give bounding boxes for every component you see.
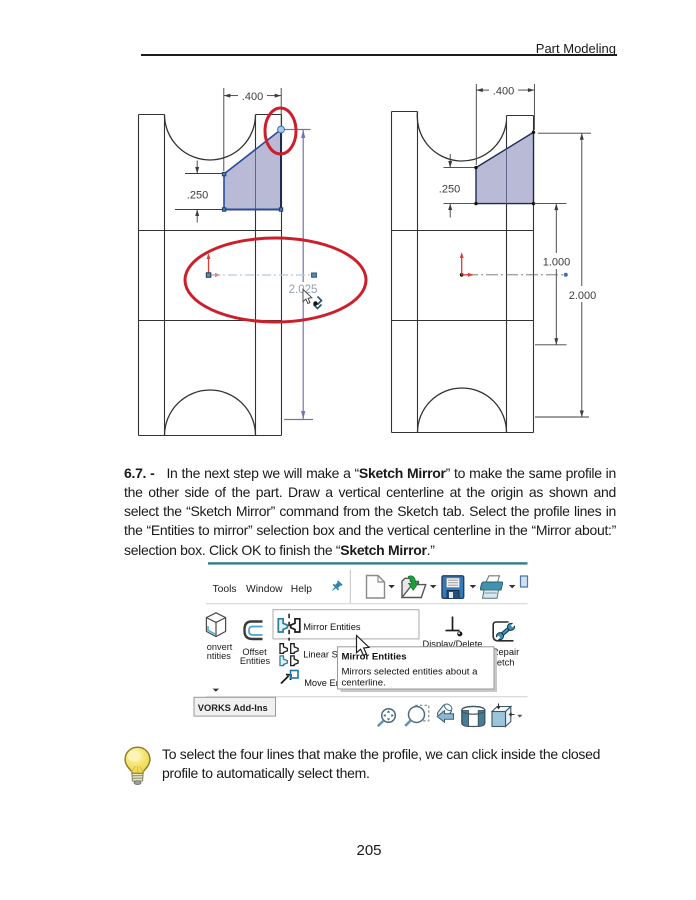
svg-text:Mirrors selected entities abou: Mirrors selected entities about a: [342, 667, 479, 678]
svg-text:centerline.: centerline.: [342, 677, 386, 688]
svg-text:.250: .250: [187, 189, 208, 201]
svg-text:Mirror Entities: Mirror Entities: [342, 652, 407, 663]
svg-text:.400: .400: [493, 85, 514, 97]
svg-text:1.000: 1.000: [543, 257, 571, 269]
svg-text:Window: Window: [246, 584, 283, 595]
svg-text:Linear Sl: Linear Sl: [303, 649, 340, 659]
svg-text:Help: Help: [291, 584, 312, 595]
svg-text:Move En: Move En: [304, 678, 341, 688]
svg-text:ntities: ntities: [207, 651, 231, 661]
svg-text:.400: .400: [242, 91, 263, 103]
svg-text:.250: .250: [439, 184, 460, 196]
svg-text:Mirror Entities: Mirror Entities: [303, 622, 361, 632]
svg-text:Tools: Tools: [213, 584, 237, 595]
svg-text:2.000: 2.000: [569, 290, 597, 302]
svg-text:Entities: Entities: [240, 656, 271, 666]
svg-text:VORKS Add-Ins: VORKS Add-Ins: [198, 703, 268, 713]
